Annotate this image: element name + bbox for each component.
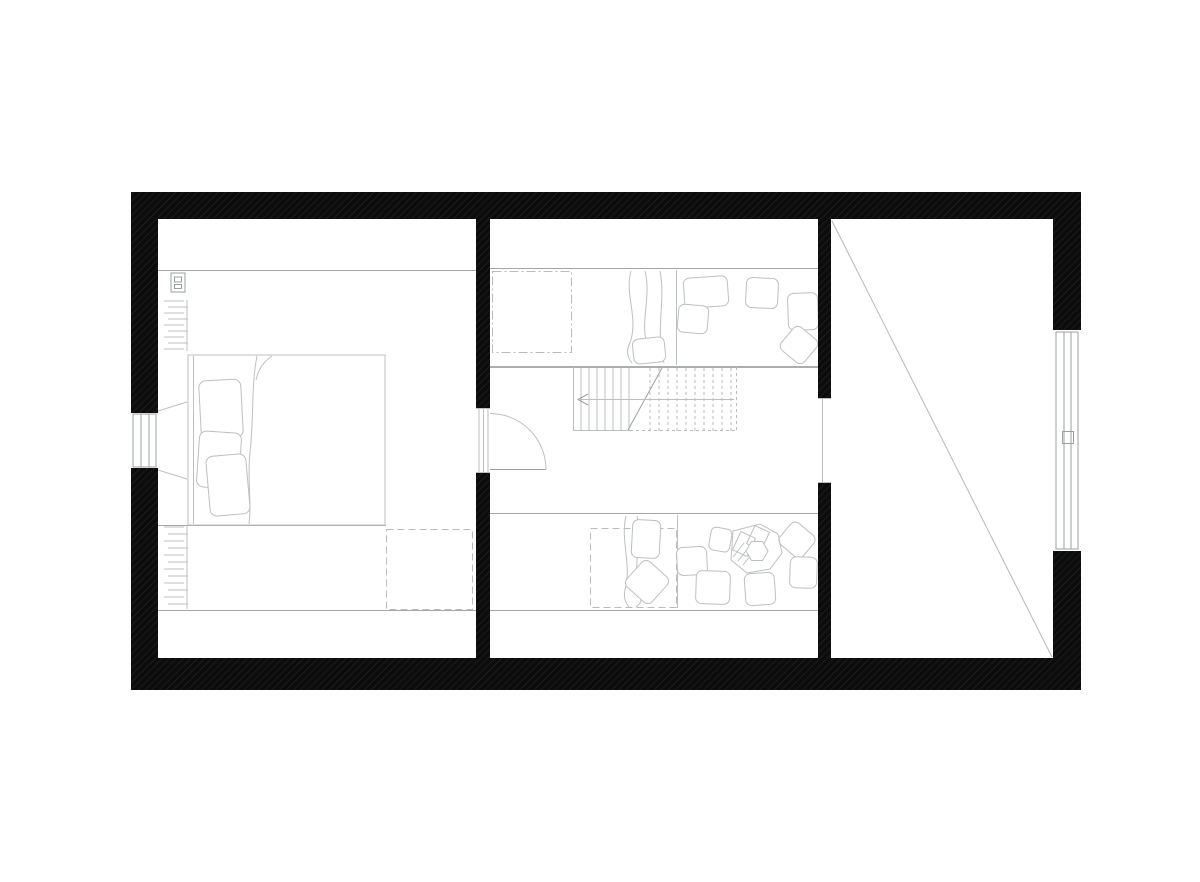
pillow <box>683 276 729 309</box>
void-room <box>832 221 1052 657</box>
person-head <box>746 542 768 561</box>
daybed-bottom <box>591 515 818 608</box>
window-right <box>1056 332 1078 549</box>
interior-wall-bedroom-upper <box>476 219 490 408</box>
electrical-panel-switch <box>175 285 182 289</box>
daybed-top <box>628 270 821 366</box>
bedroom <box>158 273 473 610</box>
interior-wall-void-lower <box>818 483 831 658</box>
electrical-panel <box>171 273 185 292</box>
window-reveal-top <box>158 402 187 411</box>
outer-wall-right-lower <box>1053 551 1081 690</box>
window-frame <box>133 414 156 467</box>
radiator-fins <box>164 527 188 604</box>
pillow <box>777 520 818 561</box>
pillow <box>745 277 779 309</box>
pillow <box>632 336 666 364</box>
hall <box>493 270 821 608</box>
window-frame <box>1056 332 1078 549</box>
rolled-blanket <box>628 271 633 363</box>
radiator-fins <box>164 301 188 349</box>
pillow <box>631 519 661 558</box>
staircase <box>574 367 738 431</box>
radiator-upper <box>164 300 188 351</box>
pillow <box>787 292 818 330</box>
door-swing-arc <box>490 414 546 470</box>
interior-wall-void-upper <box>818 219 831 398</box>
skylight-dashdot-hall <box>493 272 572 353</box>
void-diagonal <box>832 221 1052 657</box>
pillow <box>205 453 250 516</box>
outer-wall-left-lower <box>131 468 158 690</box>
pillow <box>789 557 817 589</box>
pillow <box>199 379 244 439</box>
radiator-lower <box>164 526 188 609</box>
pillow <box>744 572 776 606</box>
opening-void-room <box>818 398 831 483</box>
door-bedroom <box>476 409 546 473</box>
pillow <box>695 570 730 604</box>
floor-plan-canvas <box>0 0 1200 882</box>
pillow <box>778 324 820 366</box>
person-figure <box>731 524 782 573</box>
pillow <box>708 526 733 552</box>
electrical-panel-switch <box>175 277 182 282</box>
pillow <box>623 558 671 606</box>
double-bed <box>188 355 385 525</box>
outer-wall-bottom <box>131 658 1081 690</box>
rolled-blanket <box>624 516 629 607</box>
stair-direction-arrow <box>578 394 734 405</box>
window-reveal-bottom <box>158 470 187 479</box>
interior-wall-bedroom-lower <box>476 473 490 658</box>
outer-wall-left-upper <box>131 192 158 413</box>
pillow <box>677 304 709 335</box>
skylight-dashed-bedroom <box>387 530 473 610</box>
outer-wall-top <box>131 192 1081 219</box>
floor-plan-drawing <box>0 0 1200 882</box>
outer-wall-right-upper <box>1053 192 1081 330</box>
window-left <box>133 414 156 467</box>
